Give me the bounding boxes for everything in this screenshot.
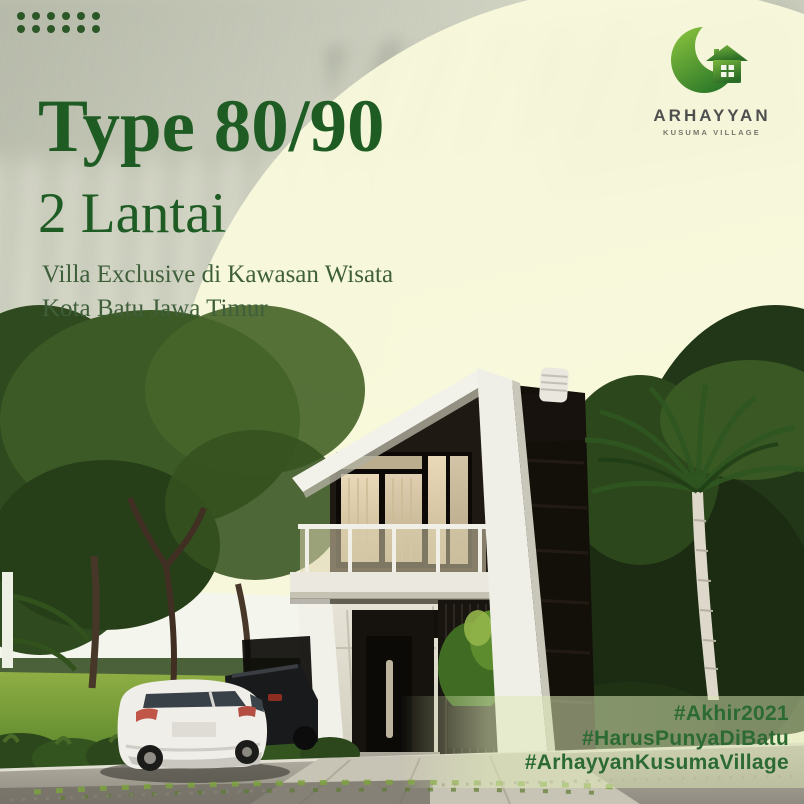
hashtag: #ArhayyanKusumaVillage [525, 751, 789, 776]
tagline-line2: Kota Batu Jawa Timur [42, 295, 268, 322]
hashtags: #Akhir2021 #HarusPunyaDiBatu #ArhayyanKu… [525, 702, 789, 776]
hashtag: #Akhir2021 [525, 702, 789, 727]
tagline: Villa Exclusive di Kawasan Wisata Kota B… [42, 258, 393, 326]
logo-name: ARHAYYAN [626, 106, 798, 126]
chimney [539, 367, 569, 403]
poster: ARHAYYAN KUSUMA VILLAGE Type 80/90 2 Lan… [0, 0, 804, 804]
hashtag: #HarusPunyaDiBatu [525, 727, 789, 752]
tagline-line1: Villa Exclusive di Kawasan Wisata [42, 261, 393, 288]
headline-type: Type 80/90 [38, 84, 385, 170]
logo-subtitle: KUSUMA VILLAGE [626, 128, 798, 137]
brand-logo: ARHAYYAN KUSUMA VILLAGE [626, 20, 798, 137]
headline-floors: 2 Lantai [38, 181, 226, 246]
crescent-house-logo-icon [664, 20, 760, 104]
dots-pattern [17, 12, 107, 38]
